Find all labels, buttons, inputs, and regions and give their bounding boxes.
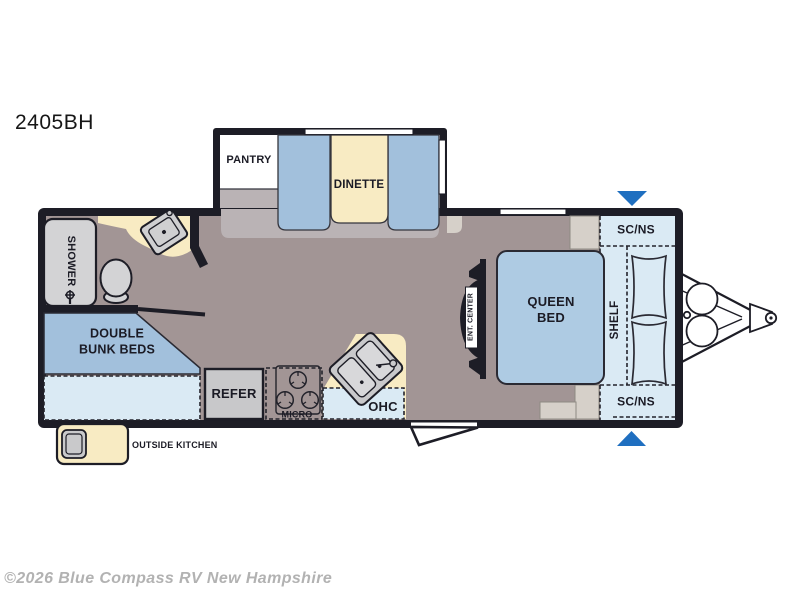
galley-end-cabinet	[447, 216, 462, 233]
window	[439, 140, 446, 194]
rv-floorplan-page: 2405BH	[0, 0, 800, 600]
bunk-beds-label: DOUBLE BUNK BEDS	[79, 326, 155, 357]
window	[305, 129, 413, 135]
scns-bottom-label: SC/NS	[617, 395, 655, 410]
hitch-frame	[678, 272, 758, 364]
shelf-label: SHELF	[608, 301, 622, 340]
window	[500, 209, 566, 215]
watermark: ©2026 Blue Compass RV New Hampshire	[4, 570, 332, 588]
wardrobe-cabinet	[570, 216, 599, 249]
propane-tanks-icon	[684, 284, 718, 347]
wardrobe-cabinet	[575, 385, 599, 419]
pantry-label: PANTRY	[226, 154, 271, 168]
outside-kitchen-label: OUTSIDE KITCHEN	[132, 440, 218, 451]
bathroom-wall	[190, 208, 199, 248]
hitch-coupler-icon	[750, 304, 776, 332]
entry-door	[411, 427, 478, 445]
shower-label: SHOWER	[63, 236, 77, 287]
bunk-lower	[44, 376, 200, 420]
dinette-bench-left	[278, 135, 330, 230]
dinette-label: DINETTE	[334, 178, 385, 192]
toilet	[101, 260, 132, 297]
microwave-label: MICRO	[282, 409, 313, 420]
dinette-bench-right	[388, 135, 439, 230]
refrigerator-label: REFER	[211, 386, 256, 402]
arrow-up-icon	[617, 431, 646, 446]
scns-top-label: SC/NS	[617, 223, 655, 238]
entertainment-center-label: ENT. CENTER	[467, 293, 476, 341]
bedroom-cabinet	[540, 402, 576, 419]
queen-bed-label: QUEEN BED	[527, 294, 574, 327]
floorplan-diagram	[0, 0, 800, 600]
overhead-cabinet-label: OHC	[368, 399, 398, 415]
arrow-down-icon	[617, 191, 647, 206]
